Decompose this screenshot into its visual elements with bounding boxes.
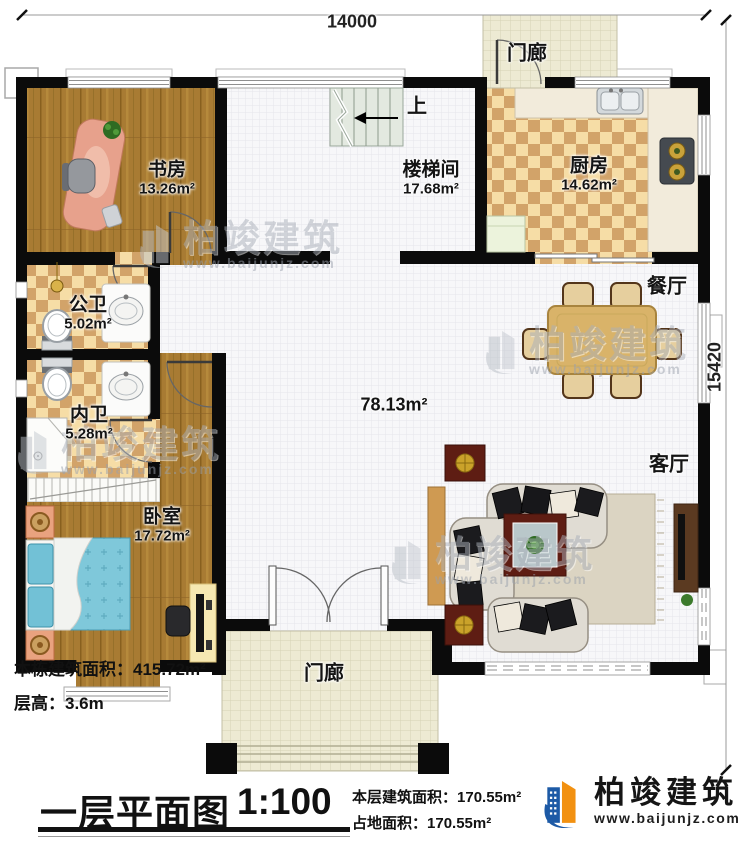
brand-name: 柏竣建筑 [594,776,738,810]
tv-cabinet-icon [674,504,698,592]
watermark-name: 柏竣建筑 [183,220,343,257]
building-area-label: 本栋建筑面积： [14,660,133,679]
dimension-right: 15420 [705,342,726,392]
title-underline [38,827,350,832]
floor-height-value: 3.6m [65,694,104,713]
room-label-stairwell: 楼梯间 17.68m² [402,161,459,198]
room-label-porch-bottom: 门廊 [304,657,344,686]
fridge-icon [487,216,525,252]
private-bath-area: 5.28m² [65,426,113,442]
public-bath-area: 5.02m² [64,316,112,332]
drawing-scale: 1:100 [237,781,332,823]
watermark-url: www.baijunjz.com [183,255,343,271]
bedroom-name: 卧室 [143,508,181,529]
stair-up-label: 上 [407,90,427,119]
building-area-line: 本栋建筑面积：415.72m² [14,655,206,680]
room-label-kitchen: 厨房 14.62m² [561,157,617,194]
room-label-living: 客厅 [649,448,689,477]
floor-area-line: 本层建筑面积：170.55m² [352,786,521,807]
brand-url: www.baijunjz.com [594,810,740,826]
room-label-porch-top: 门廊 [507,37,547,66]
dimension-top: 14000 [327,12,377,33]
brand-logo-icon [540,776,586,832]
watermark-url: www.baijunjz.com [435,571,595,587]
building-area-value: 415.72m² [133,660,206,679]
watermark: 柏竣建筑 www.baijunjz.com [388,536,595,587]
room-label-dining: 餐厅 [647,270,687,299]
watermark-logo-icon [482,327,524,377]
watermark-url: www.baijunjz.com [61,461,221,477]
floorplan-page: 柏竣建筑 www.baijunjz.com 柏竣建筑 www.baijunjz.… [0,0,750,849]
private-bath-name: 内卫 [70,406,108,427]
room-label-bedroom: 卧室 17.72m² [134,508,190,545]
kitchen-area: 14.62m² [561,177,617,193]
stairs [330,88,403,146]
land-area-label: 占地面积： [352,815,427,832]
room-label-private-bath: 内卫 5.28m² [65,406,113,443]
title-underline-thin [38,836,350,837]
floor-height-label: 层高： [14,694,65,713]
watermark-logo-icon [136,221,178,271]
floor-area-value: 170.55m² [457,789,521,806]
land-area-value: 170.55m² [427,815,491,832]
floor-area-label: 本层建筑面积： [352,789,457,806]
watermark-logo-icon [14,427,56,477]
study-name: 书房 [148,161,186,182]
land-area-line: 占地面积：170.55m² [352,812,491,833]
bedroom-area: 17.72m² [134,528,190,544]
kitchen-name: 厨房 [570,157,608,178]
room-label-public-bath: 公卫 5.02m² [64,296,112,333]
hall-area-label: 78.13m² [360,395,427,416]
public-bath-name: 公卫 [69,296,107,317]
brand-block: 柏竣建筑 www.baijunjz.com [540,776,740,832]
floor-height-line: 层高：3.6m [14,689,104,714]
watermark-logo-icon [388,537,430,587]
watermark: 柏竣建筑 www.baijunjz.com [482,326,689,377]
watermark-url: www.baijunjz.com [529,361,689,377]
watermark: 柏竣建筑 www.baijunjz.com [136,220,343,271]
stairwell-name: 楼梯间 [402,161,459,182]
study-area: 13.26m² [139,181,195,197]
room-label-study: 书房 13.26m² [139,161,195,198]
stairwell-area: 17.68m² [403,181,459,197]
watermark-name: 柏竣建筑 [529,326,689,363]
watermark: 柏竣建筑 www.baijunjz.com [14,426,221,477]
watermark-name: 柏竣建筑 [435,536,595,573]
